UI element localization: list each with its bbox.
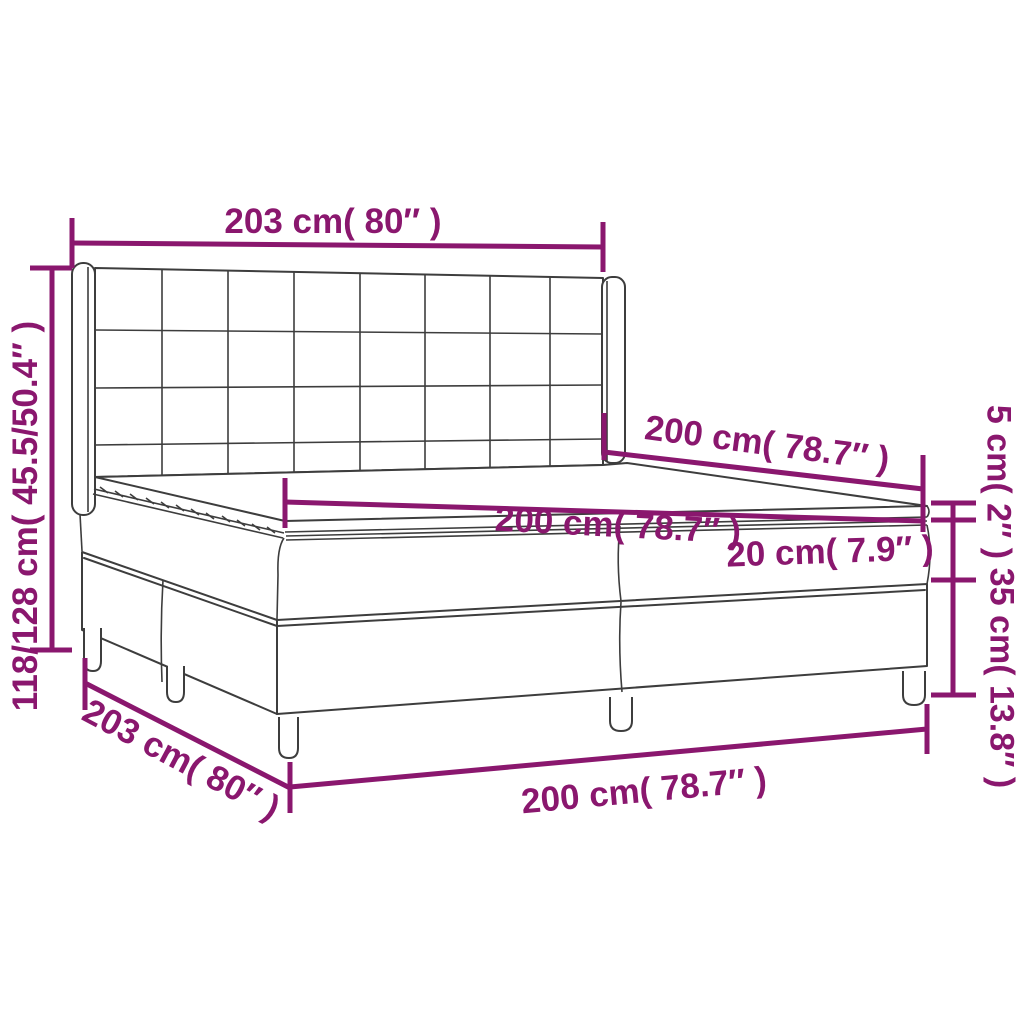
dim-label-base-height: 35 cm( 13.8″ ): [982, 568, 1021, 788]
dim-label-overall-height: 118/128 cm( 45.5/50.4″ ): [6, 321, 46, 711]
product-dimension-diagram: 203 cm( 80″ ) 118/128 cm( 45.5/50.4″ ) 2…: [0, 0, 1024, 1024]
leg: [903, 671, 925, 705]
headboard-left-wing: [72, 263, 95, 551]
dim-label-mattress-thickness: 20 cm( 7.9″ ): [726, 528, 935, 575]
headboard-face: [95, 268, 603, 477]
box-spring-base: [82, 552, 927, 714]
mattress-front-left-corner: [277, 538, 284, 619]
leg: [167, 666, 184, 702]
dim-label-headboard-width: 203 cm( 80″ ): [224, 202, 441, 242]
leg: [610, 697, 632, 731]
dim-label-topper-thickness: 5 cm( 2″ ): [979, 405, 1018, 559]
dim-right-stack: [931, 503, 976, 695]
leg: [279, 717, 298, 758]
base-front-face: [277, 584, 927, 714]
